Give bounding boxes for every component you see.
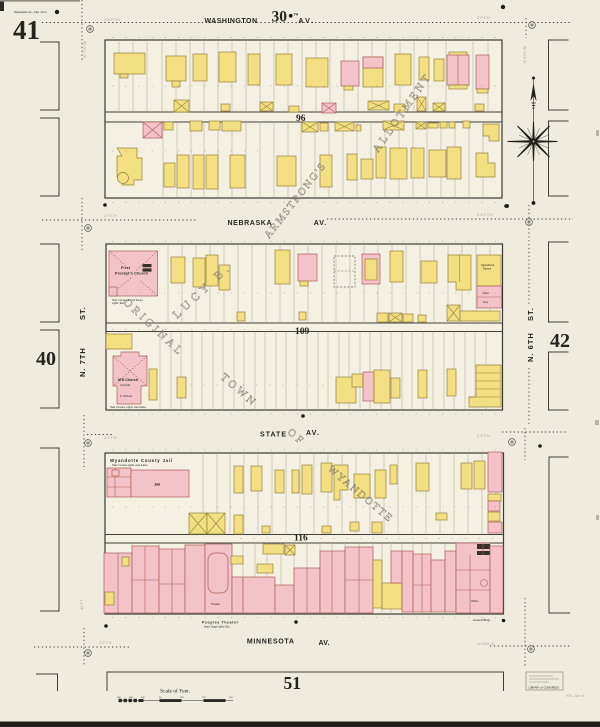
svg-text:40 FT: 40 FT [79, 599, 84, 610]
svg-text:STATE: STATE [260, 432, 286, 439]
svg-text:5 F.T.H.: 5 F.T.H. [477, 15, 491, 20]
svg-text:2 F.T.H.: 2 F.T.H. [476, 433, 491, 438]
svg-text:N. 7TH: N. 7TH [78, 347, 87, 377]
svg-text:Agricultural: Agricultural [481, 263, 494, 267]
svg-text:Paint: Paint [483, 291, 489, 295]
svg-text:WASHINGTON: WASHINGTON [205, 18, 258, 25]
svg-text:51: 51 [284, 673, 302, 693]
svg-text:F.H. Jan 5: F.H. Jan 5 [566, 693, 585, 698]
svg-text:ST.: ST. [78, 306, 87, 320]
svg-text:AV.: AV. [306, 430, 319, 437]
svg-text:Peoples Theater: Peoples Theater [202, 621, 239, 625]
svg-text:2 F.T.H.: 2 F.T.H. [103, 213, 118, 218]
svg-text:2.5 F.T.H.: 2.5 F.T.H. [103, 17, 121, 22]
svg-text:Seats: Stage Lights: Elec.: Seats: Stage Lights: Elec. [204, 626, 231, 629]
svg-text:Husted Bl'dg: Husted Bl'dg [473, 618, 490, 622]
svg-text:Heat: Furnace Lights: Gas &: Heat: Furnace Lights: Gas & Elec. [112, 464, 148, 467]
svg-text:NEBRASKA: NEBRASKA [228, 220, 272, 227]
svg-text:LIBRARY of CONGRESS: LIBRARY of CONGRESS [529, 686, 560, 690]
svg-text:41: 41 [13, 15, 40, 45]
svg-text:2 F.T.H.: 2 F.T.H. [103, 435, 118, 440]
svg-text:(Central): (Central) [120, 383, 130, 387]
svg-text:MINNESOTA: MINNESOTA [247, 639, 294, 646]
svg-text:96: 96 [296, 114, 306, 124]
svg-text:Wyandotte Co., Kan. Vol.1: Wyandotte Co., Kan. Vol.1 [14, 10, 47, 14]
svg-text:116: 116 [294, 534, 308, 544]
svg-text:M.E.Church: M.E.Church [118, 378, 138, 382]
svg-text:on Min. S: on Min. S [477, 641, 494, 646]
svg-text:N 7TH 40: N 7TH 40 [82, 40, 87, 58]
svg-text:N 6TH 40: N 6TH 40 [522, 45, 527, 63]
svg-text:Scale of Feet.: Scale of Feet. [160, 688, 191, 695]
svg-text:TH: TH [294, 13, 299, 17]
svg-text:AV.: AV. [314, 220, 327, 227]
svg-text:N. 6TH: N. 6TH [526, 332, 535, 362]
svg-text:2 F.T.H: 2 F.T.H [98, 640, 112, 645]
svg-text:First: First [121, 266, 131, 270]
svg-text:Wyandotte County Jail: Wyandotte County Jail [110, 458, 172, 463]
svg-text:30: 30 [272, 9, 288, 26]
svg-text:AV.: AV. [298, 18, 313, 25]
svg-text:AV.: AV. [319, 640, 330, 647]
svg-text:40: 40 [36, 348, 56, 370]
svg-text:Presbyt'n Church: Presbyt'n Church [115, 272, 148, 276]
svg-text:2.5 F.T.H: 2.5 F.T.H [476, 212, 493, 217]
svg-text:S. School: S. School [120, 394, 132, 398]
svg-text:ST.: ST. [526, 307, 535, 321]
svg-text:Theater: Theater [211, 602, 220, 606]
svg-text:Heat: Furnace, Lights: Gas & E: Heat: Furnace, Lights: Gas & Elec. [110, 406, 147, 409]
svg-text:42: 42 [550, 330, 570, 352]
svg-text:Office: Office [471, 599, 479, 603]
svg-text:Jail: Jail [154, 483, 160, 487]
svg-text:109: 109 [295, 327, 310, 337]
svg-text:Rooms: Rooms [483, 267, 492, 271]
svg-text:Fcty: Fcty [483, 300, 489, 304]
